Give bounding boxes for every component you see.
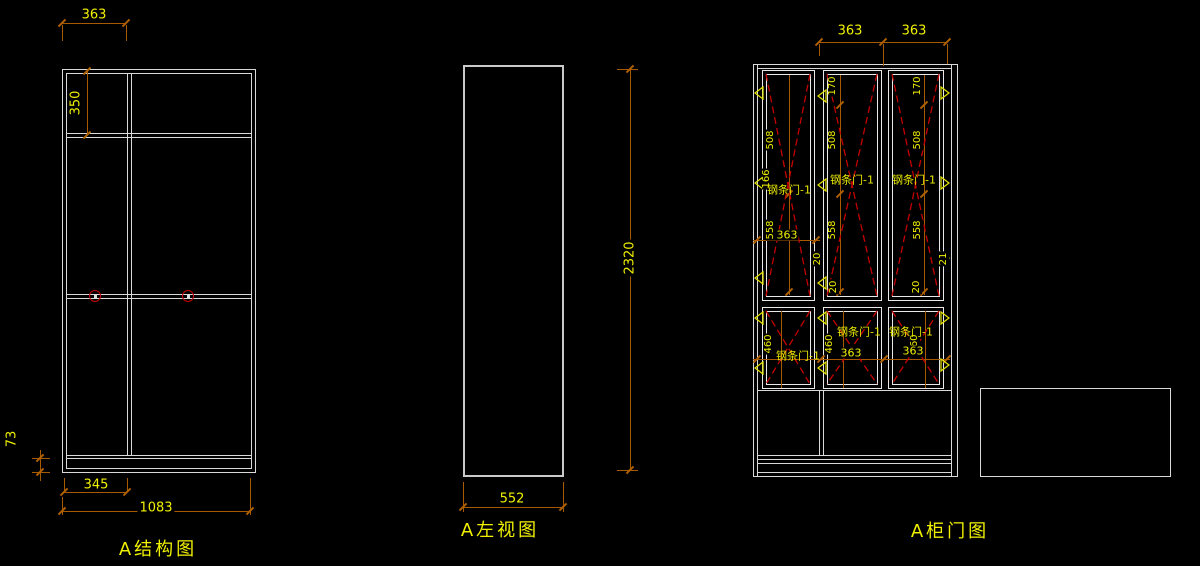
door-view-base-line [757,459,952,460]
structure-bottom-shelf-line [66,458,251,459]
door-label: 钢条门-1 [774,351,822,362]
door-view-base-line [757,455,952,456]
dim-text-top-section: 350 [70,89,83,118]
door-label: 钢条门-1 [765,185,813,196]
dim-text-bottom-rail: 20 [912,280,922,295]
extension-line [62,25,63,41]
connector-symbol-icon [182,290,194,302]
dim-text-small-door-height: 460 [764,333,774,354]
dim-text-lower-panel: 558 [913,219,923,240]
dim-text-base-height: 73 [6,429,19,450]
door-view-divider-line [823,390,824,456]
dim-text-total-width: 1083 [137,502,174,515]
dim-text-right-door-width: 363 [900,25,929,38]
door-view-side-line [951,64,952,476]
dim-text-bottom-rail: 20 [813,252,823,267]
base-panel-outline [980,388,1171,477]
dim-text-small-door-width: 363 [902,346,925,357]
side-view-title: A左视图 [459,522,541,540]
dim-text-lower-panel: 558 [766,219,776,240]
dim-text-total-height: 2320 [624,239,637,276]
dim-text-left-bay: 345 [82,479,111,492]
structure-view-title: A结构图 [117,541,199,559]
dim-text-top-rail: 170 [828,75,838,96]
dim-text-upper-panel: 508 [828,129,838,150]
extension-line [947,44,948,64]
connector-symbol-icon [89,290,101,302]
extension-line [62,497,63,515]
dim-text-upper-panel: 508 [766,129,776,150]
door-view-base-line [757,463,952,464]
cad-drawing-canvas: 363 350 73 345 1083 A结构图 552 2320 A左视图 [0,0,1200,566]
door-view-shelf-line [757,390,952,391]
dim-text-top-width: 363 [80,9,109,22]
door-view-top-rail-line [757,68,952,69]
door-label: 钢条门-1 [887,327,935,338]
structure-divider-line [127,73,128,455]
dim-text-small-door-height: 460 [825,333,835,354]
structure-divider-line [131,73,132,455]
dim-text-upper-panel: 508 [913,129,923,150]
dim-text-bottom-rail-alt: 21 [939,252,949,267]
dimension-tick [123,488,131,496]
extension-line [126,25,127,41]
extension-line [819,44,820,56]
door-view-base-line [757,472,952,473]
extension-line [883,44,884,66]
dimension-line [925,311,926,388]
door-label: 钢条门-1 [828,175,876,186]
side-view-outline [463,65,564,477]
door-label: 钢条门-1 [890,175,938,186]
dim-text-depth: 552 [498,493,527,506]
door-view-divider-line [819,390,820,456]
dim-text-door-inner-width: 363 [776,230,799,241]
door-view-title: A柜门图 [909,523,991,541]
dim-text-lower-panel: 558 [828,219,838,240]
door-view-side-line [757,64,758,476]
dimension-line [87,71,88,135]
structure-shelf-line [66,133,251,134]
dim-text-left-door-width: 363 [836,25,865,38]
dimension-line [463,507,563,508]
dim-text-top-rail: 170 [913,75,923,96]
dimension-line [62,23,126,24]
structure-shelf-line [66,137,251,138]
dim-text-small-door-width: 363 [840,348,863,359]
dim-text-bottom-rail: 20 [829,280,839,295]
door-label: 钢条门-1 [835,327,883,338]
structure-bottom-shelf-line [66,455,251,456]
